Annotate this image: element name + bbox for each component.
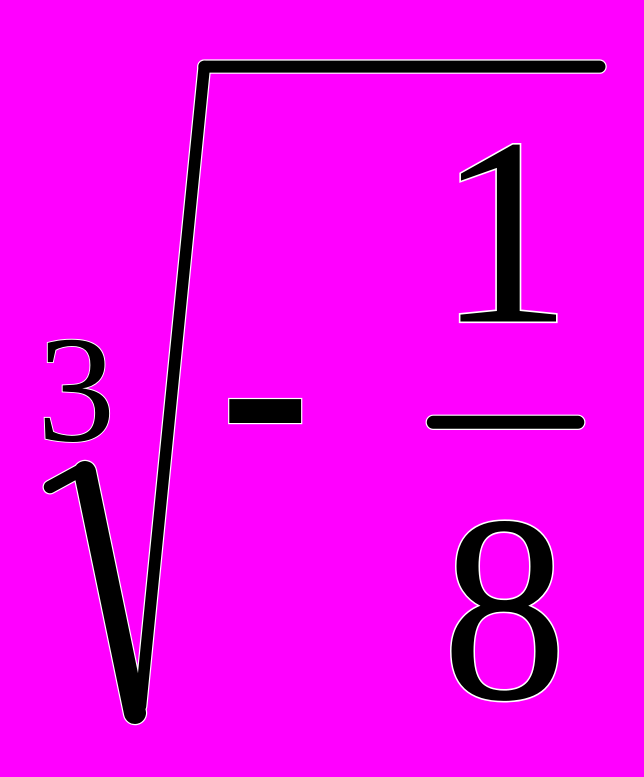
svg-text:8: 8 [442,461,567,756]
svg-text:3: 3 [37,306,115,474]
svg-text:1: 1 [437,84,573,380]
